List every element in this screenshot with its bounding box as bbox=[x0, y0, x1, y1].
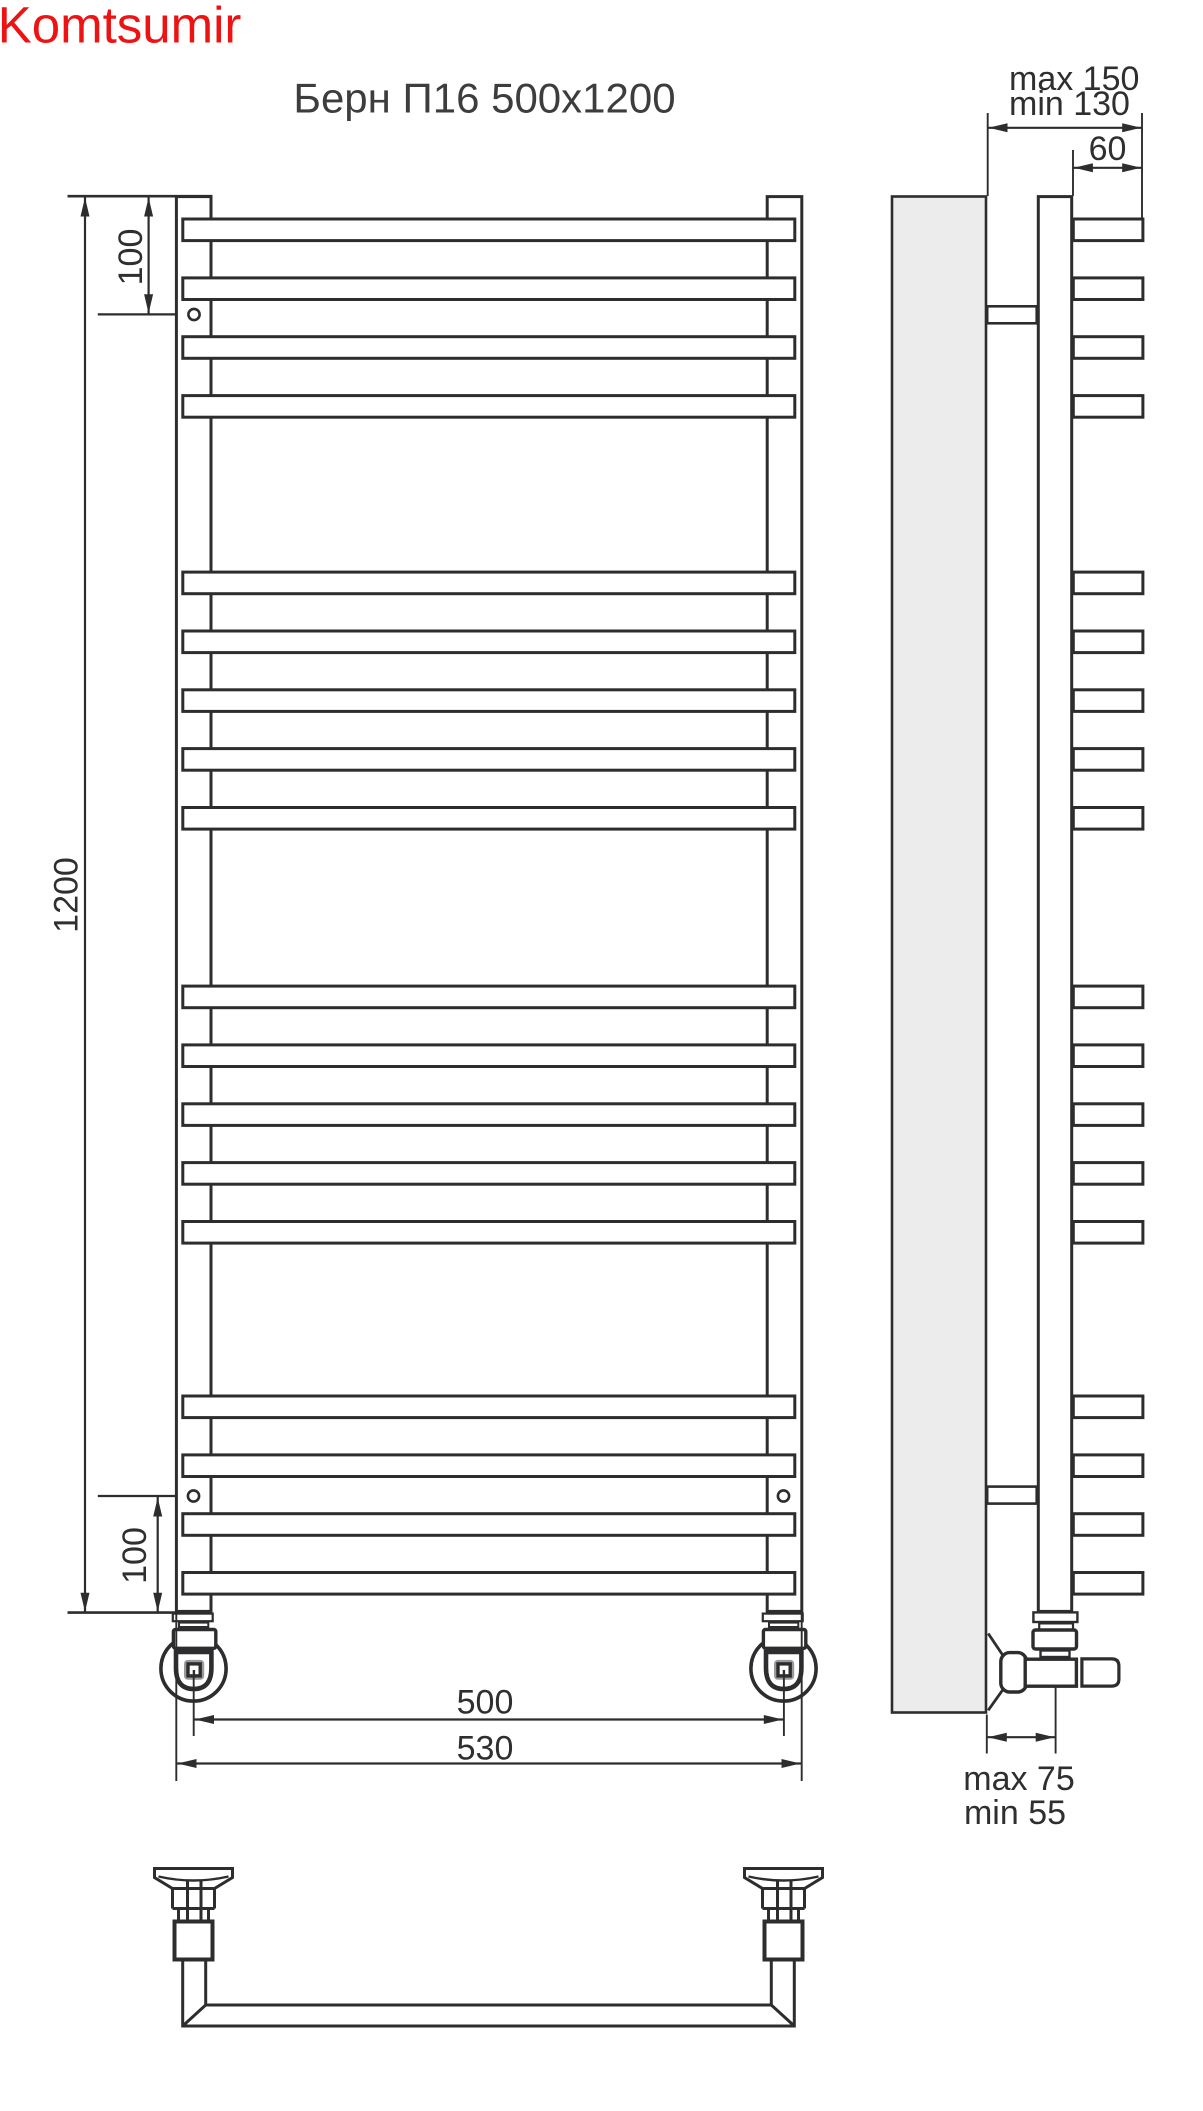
svg-text:min 130: min 130 bbox=[1009, 85, 1130, 123]
svg-text:100: 100 bbox=[112, 229, 150, 286]
svg-text:500: 500 bbox=[457, 1684, 514, 1722]
svg-text:530: 530 bbox=[457, 1730, 514, 1768]
svg-text:Komtsumir: Komtsumir bbox=[0, 0, 241, 54]
svg-text:100: 100 bbox=[116, 1527, 154, 1584]
svg-text:min 55: min 55 bbox=[964, 1794, 1066, 1832]
svg-text:1200: 1200 bbox=[47, 857, 85, 933]
svg-text:max 75: max 75 bbox=[963, 1760, 1075, 1798]
svg-text:60: 60 bbox=[1089, 130, 1127, 168]
svg-text:Берн П16 500x1200: Берн П16 500x1200 bbox=[293, 75, 675, 122]
